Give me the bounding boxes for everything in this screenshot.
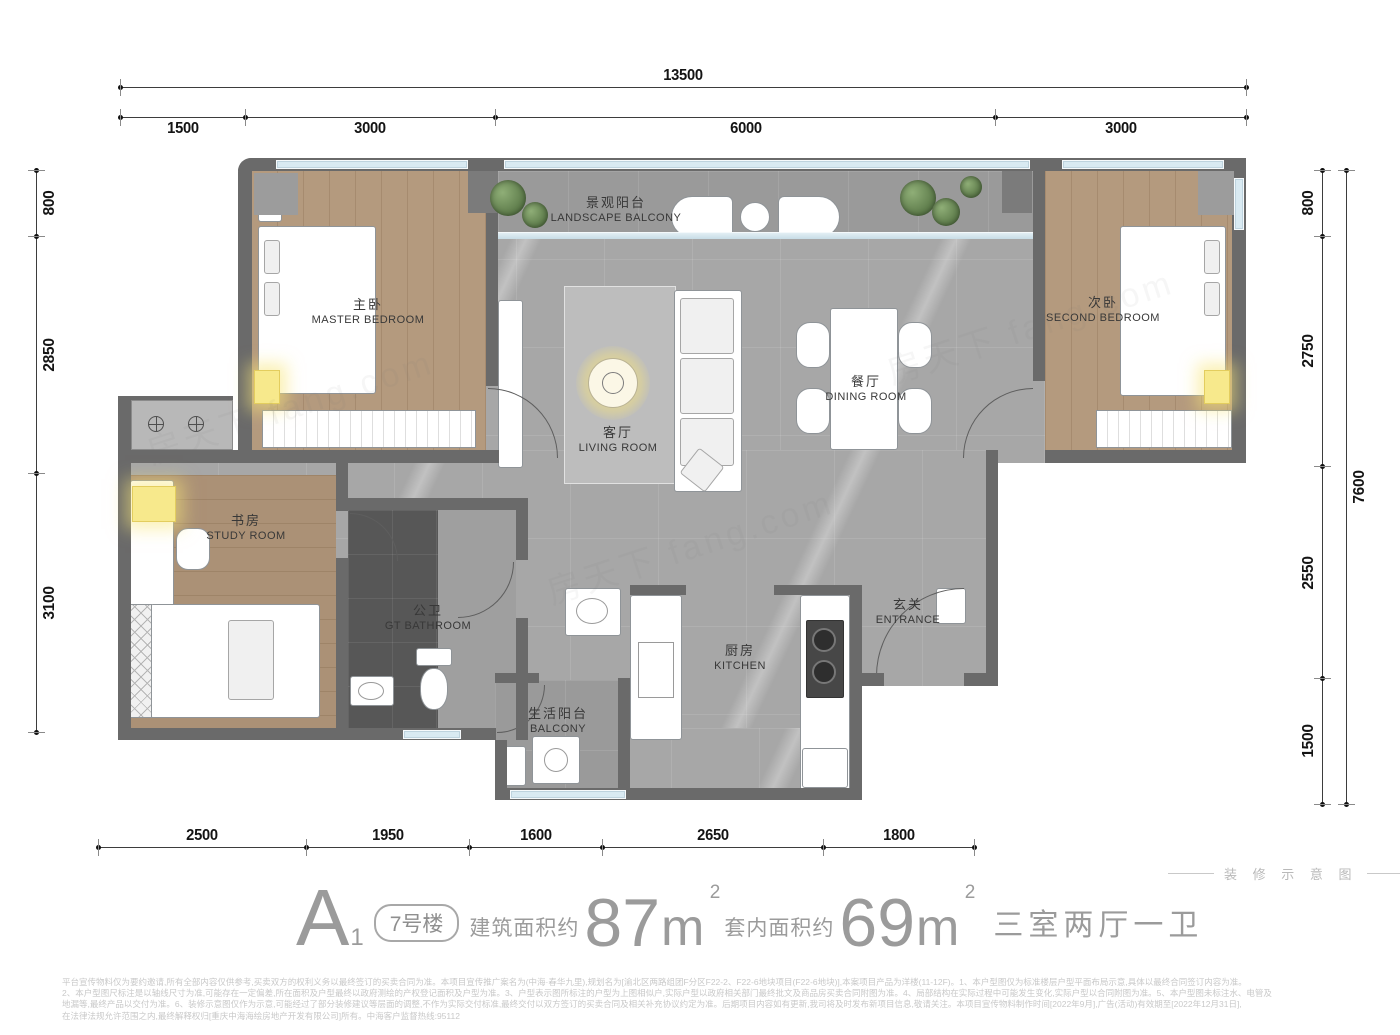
decor [974, 839, 975, 856]
decor [823, 839, 824, 856]
decor [36, 170, 37, 732]
dim-label: 3100 [41, 586, 59, 619]
room-label-entrance: 玄关ENTRANCE [876, 594, 941, 626]
wall-segment [774, 585, 850, 595]
room-name-en: LIVING ROOM [579, 442, 658, 454]
pillow [1204, 282, 1220, 316]
window [510, 790, 626, 799]
room-name-cn: 景观阳台 [551, 192, 682, 211]
ac-symbol [188, 416, 204, 432]
room-name-cn: 次卧 [1046, 292, 1160, 311]
room-name-cn: 生活阳台 [528, 703, 588, 722]
dining-chair [898, 322, 932, 368]
dim-label: 2650 [697, 827, 729, 845]
coffee-table-lamp [602, 372, 624, 394]
room-name-en: STUDY ROOM [206, 530, 285, 542]
dim-label: 2750 [1300, 335, 1318, 368]
decor [306, 839, 307, 856]
wall-segment [986, 450, 998, 686]
plant [522, 202, 548, 228]
decor [495, 109, 496, 126]
dining-chair [796, 322, 830, 368]
unit-type: A 1 [296, 886, 364, 950]
decor [1338, 804, 1355, 805]
decor [1246, 79, 1247, 96]
wall-segment [238, 158, 252, 463]
unit-m: m [916, 899, 959, 957]
dim-label: 1800 [883, 827, 915, 845]
kitchen-sink [638, 642, 674, 698]
wall-segment [336, 558, 348, 740]
pillow [228, 620, 274, 700]
window [403, 730, 461, 739]
decor [28, 170, 45, 171]
balcony-table [740, 202, 770, 232]
burner [812, 628, 836, 652]
dim-label: 2550 [1300, 556, 1318, 589]
decor [1338, 170, 1355, 171]
desk-lamp-glow [132, 486, 176, 522]
sofa-cushion [680, 298, 734, 354]
room-name-en: ENTRANCE [876, 614, 941, 626]
gross-area-value: 87 [584, 897, 660, 950]
room-name-cn: 厨房 [714, 640, 766, 659]
decor [120, 79, 121, 96]
room-label-landscape_balcony: 景观阳台LANDSCAPE BALCONY [551, 192, 682, 224]
floorplan-page: 13500 1500300060003000 80028503100 80027… [0, 0, 1400, 1035]
plant [932, 198, 960, 226]
decor [1322, 170, 1323, 804]
disclaimer-line: 地漏等,最终产品以交付为准。6、装修示意图仅作为示意,可能经过了部分装修建议等层… [62, 999, 1354, 1010]
room-name-cn: 餐厅 [825, 371, 906, 390]
dim-label: 3000 [354, 120, 386, 138]
wall-segment [118, 450, 499, 463]
window [1062, 160, 1224, 169]
dim-label: 1600 [520, 827, 552, 845]
dim-label: 6000 [730, 120, 762, 138]
toilet-bowl [420, 668, 448, 710]
dim-top-segments: 1500300060003000 [120, 100, 1246, 136]
balcony-glass-rail [498, 232, 1033, 239]
room-name-en: DINING ROOM [825, 391, 906, 403]
corner-column [254, 173, 298, 215]
room-label-study_room: 书房STUDY ROOM [206, 510, 285, 542]
disclaimer-line: 平台宣传物料仅为要约邀请,所有全部内容仅供参考,买卖双方的权利义务以最终签订的买… [62, 977, 1354, 988]
net-area-unit: m2 [916, 907, 975, 950]
bay-window-lamp [254, 370, 280, 404]
decor [120, 87, 1246, 88]
unit-type-sub: 1 [350, 926, 363, 950]
decor [602, 839, 603, 856]
decor-note-dash [1168, 873, 1214, 874]
decor [995, 109, 996, 126]
toilet-tank [416, 648, 452, 666]
wall-segment [118, 398, 131, 740]
pillow [264, 240, 280, 274]
dim-label: 13500 [663, 67, 703, 85]
room-label-second_bedroom: 次卧SECOND BEDROOM [1046, 292, 1160, 324]
room-name-en: BALCONY [528, 723, 588, 735]
building-badge: 7号楼 [374, 904, 460, 942]
decor [28, 732, 45, 733]
room-label-gt_bathroom: 公卫GT BATHROOM [385, 600, 471, 632]
plant [960, 176, 982, 198]
layout-text: 三室两厅一卫 [993, 900, 1203, 944]
window [504, 160, 1030, 169]
room-name-en: LANDSCAPE BALCONY [551, 212, 682, 224]
wall-segment [1045, 450, 1246, 463]
wall-segment [1033, 171, 1045, 381]
decor [28, 473, 45, 474]
window [276, 160, 468, 169]
second-wardrobe [1096, 410, 1232, 448]
room-name-en: SECOND BEDROOM [1046, 312, 1160, 324]
decor [28, 236, 45, 237]
structural-column [1002, 171, 1032, 213]
room-name-cn: 客厅 [579, 422, 658, 441]
dim-label: 1500 [167, 120, 199, 138]
disclaimer: 平台宣传物料仅为要约邀请,所有全部内容仅供参考,买卖双方的权利义务以最终签订的买… [62, 977, 1354, 1022]
unit-sup: 2 [965, 885, 976, 901]
plan-title: A 1 7号楼 建筑面积约 87 m2 套内面积约 69 m2 三室两厅一卫 [296, 886, 1203, 950]
bay-window-lamp [1204, 370, 1230, 404]
wall-segment [850, 585, 862, 800]
decor [120, 117, 1246, 118]
room-name-en: MASTER BEDROOM [312, 314, 425, 326]
unit-sup: 2 [710, 885, 721, 901]
room-name-cn: 书房 [206, 510, 285, 529]
unit-m: m [661, 899, 704, 957]
plant [900, 180, 936, 216]
dim-right-total: 7600 [1327, 170, 1367, 804]
room-name-cn: 玄关 [876, 594, 941, 613]
room-label-living_room: 客厅LIVING ROOM [579, 422, 658, 454]
dim-label: 800 [41, 191, 59, 216]
room-name-cn: 公卫 [385, 600, 471, 619]
dim-label: 800 [1300, 191, 1318, 216]
study-chair [176, 528, 210, 570]
dim-label: 3000 [1105, 120, 1137, 138]
room-label-kitchen: 厨房KITCHEN [714, 640, 766, 672]
disclaimer-line: 2、本户型图尺标注是以轴线尺寸为准,可能存在一定偏差,所在面积及户型最终以政府测… [62, 988, 1354, 999]
wall-segment [862, 673, 884, 686]
dim-label: 2850 [41, 339, 59, 372]
room-name-en: GT BATHROOM [385, 620, 471, 632]
net-area-label: 套内面积约 [724, 912, 834, 942]
disclaimer-line: 在法律法规允许范围之内,最终解释权归[重庆中海海绘房地产开发有限公司]所有。中海… [62, 1011, 1354, 1022]
washer-drum [544, 748, 568, 772]
room-name-en: KITCHEN [714, 660, 766, 672]
plant [490, 180, 526, 216]
decor-note: 装 修 示 意 图 [1168, 864, 1400, 883]
dim-left-segments: 80028503100 [17, 170, 57, 732]
wall-segment [516, 510, 528, 560]
dim-bottom-segments: 25001950160026501800 [98, 830, 974, 866]
window [1234, 178, 1244, 230]
decor [1246, 109, 1247, 126]
outside-cover [862, 686, 986, 736]
wall-segment [118, 396, 233, 400]
bath-sink [358, 682, 384, 700]
net-area-value: 69 [839, 897, 915, 950]
unit-type-letter: A [296, 886, 349, 950]
dim-label: 1950 [372, 827, 404, 845]
floorplan-drawing: 景观阳台LANDSCAPE BALCONY主卧MASTER BEDROOM次卧S… [118, 158, 1246, 806]
decor [120, 109, 121, 126]
dim-label: 2500 [186, 827, 218, 845]
master-wardrobe [262, 410, 476, 448]
pillow [1204, 240, 1220, 274]
room-label-master_bedroom: 主卧MASTER BEDROOM [312, 294, 425, 326]
room-label-life_balcony: 生活阳台BALCONY [528, 703, 588, 735]
burner [812, 660, 836, 684]
room-label-dining_room: 餐厅DINING ROOM [825, 371, 906, 403]
dim-label: 1500 [1300, 725, 1318, 758]
gross-area-unit: m2 [661, 907, 720, 950]
gross-area-label: 建筑面积约 [469, 912, 579, 942]
room-name-cn: 主卧 [312, 294, 425, 313]
wall-segment [630, 585, 686, 595]
decor-note-dash [1367, 873, 1400, 874]
study-wardrobe [130, 604, 152, 718]
decor-note-text: 装 修 示 意 图 [1224, 864, 1357, 883]
corner-column [1198, 171, 1234, 215]
decor [98, 847, 974, 848]
decor [1346, 170, 1347, 804]
ac-symbol [148, 416, 164, 432]
wall-segment [336, 498, 528, 510]
decor [469, 839, 470, 856]
sofa-cushion [680, 358, 734, 414]
ac-platform [131, 400, 233, 450]
dim-label: 7600 [1351, 470, 1369, 503]
decor [245, 109, 246, 126]
pillow [264, 282, 280, 316]
decor [98, 839, 99, 856]
vanity-basin [576, 598, 608, 624]
wall-segment [618, 678, 630, 790]
fridge [802, 748, 848, 788]
wall-segment [495, 673, 539, 683]
